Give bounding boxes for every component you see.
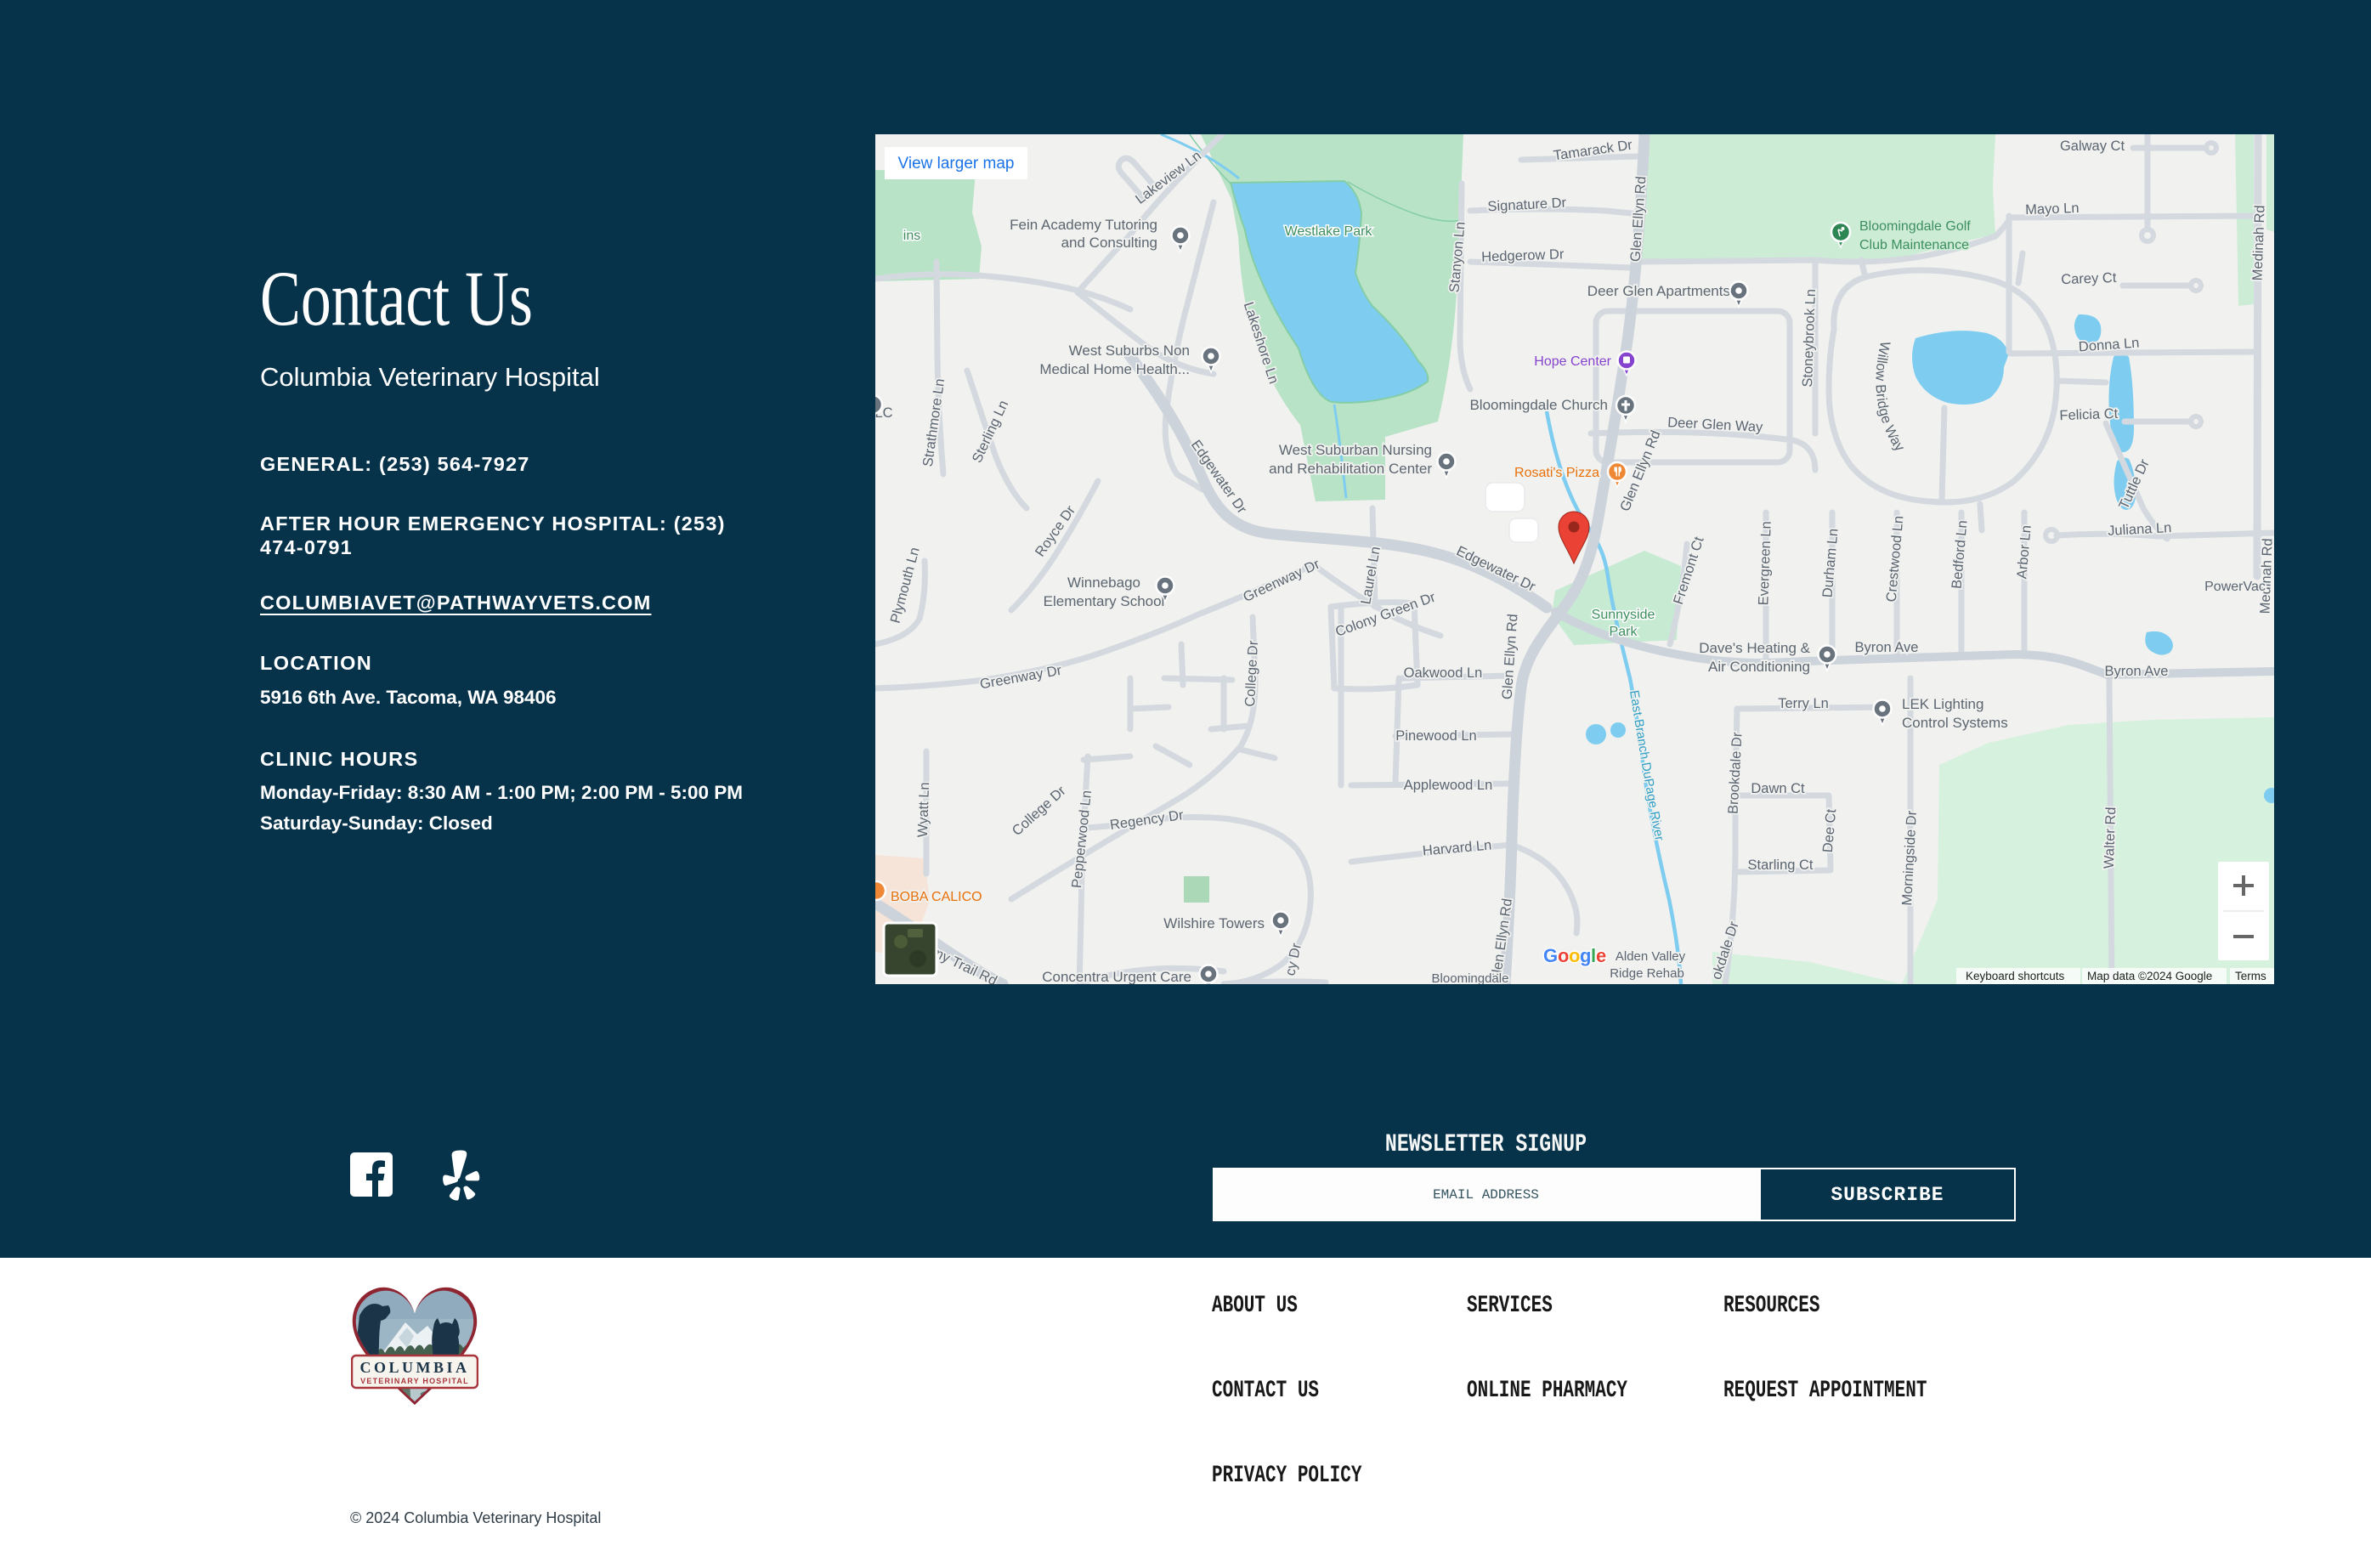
svg-text:o: o bbox=[1558, 945, 1569, 966]
svg-text:Alden Valley: Alden Valley bbox=[1616, 949, 1686, 964]
svg-text:ins: ins bbox=[903, 229, 920, 243]
svg-text:Medinah Rd: Medinah Rd bbox=[2257, 538, 2274, 614]
svg-text:Fein Academy Tutoring: Fein Academy Tutoring bbox=[1010, 217, 1157, 233]
svg-text:Medinah Rd: Medinah Rd bbox=[2249, 205, 2267, 281]
svg-text:Oakwood Ln: Oakwood Ln bbox=[1404, 665, 1483, 681]
svg-text:Ridge Rehab: Ridge Rehab bbox=[1610, 966, 1684, 981]
svg-text:PowerVac: PowerVac bbox=[2204, 580, 2266, 594]
svg-text:Deer Glen Apartments: Deer Glen Apartments bbox=[1587, 283, 1730, 299]
svg-text:G: G bbox=[1543, 945, 1558, 966]
svg-text:Bloomingdale Church: Bloomingdale Church bbox=[1469, 397, 1608, 413]
svg-text:Hedgerow Dr: Hedgerow Dr bbox=[1481, 246, 1565, 264]
svg-text:Dawn Ct: Dawn Ct bbox=[1751, 781, 1805, 796]
svg-text:Hope Center: Hope Center bbox=[1534, 354, 1611, 369]
svg-text:Starling Ct: Starling Ct bbox=[1747, 858, 1813, 873]
svg-text:Control Systems: Control Systems bbox=[1902, 715, 2008, 731]
svg-text:Club Maintenance: Club Maintenance bbox=[1859, 238, 1969, 252]
svg-text:and Rehabilitation Center: and Rehabilitation Center bbox=[1269, 461, 1432, 477]
svg-text:Byron Ave: Byron Ave bbox=[2105, 664, 2169, 679]
svg-text:COLUMBIA: COLUMBIA bbox=[359, 1359, 469, 1376]
svg-text:Air Conditioning: Air Conditioning bbox=[1708, 659, 1810, 675]
svg-text:Wilshire Towers: Wilshire Towers bbox=[1163, 915, 1265, 931]
svg-text:Map data ©2024 Google: Map data ©2024 Google bbox=[2087, 970, 2212, 982]
svg-text:VETERINARY HOSPITAL: VETERINARY HOSPITAL bbox=[360, 1377, 469, 1385]
svg-text:BOBA CALICO: BOBA CALICO bbox=[891, 890, 982, 904]
svg-text:Concentra Urgent Care: Concentra Urgent Care bbox=[1042, 969, 1191, 984]
svg-text:g: g bbox=[1580, 945, 1591, 966]
svg-text:Park: Park bbox=[1610, 625, 1638, 639]
svg-text:Sunnyside: Sunnyside bbox=[1592, 608, 1655, 622]
svg-text:West Suburban Nursing: West Suburban Nursing bbox=[1279, 442, 1432, 458]
svg-text:and Consulting: and Consulting bbox=[1061, 235, 1157, 251]
svg-text:Byron Ave: Byron Ave bbox=[1855, 640, 1919, 655]
svg-text:Bloomingdale Golf: Bloomingdale Golf bbox=[1859, 219, 1971, 234]
svg-text:Elementary School: Elementary School bbox=[1044, 593, 1165, 609]
svg-text:Carey Ct: Carey Ct bbox=[2061, 270, 2117, 287]
svg-text:Applewood Ln: Applewood Ln bbox=[1404, 778, 1493, 793]
svg-text:Pinewood Ln: Pinewood Ln bbox=[1395, 728, 1476, 744]
svg-text:Evergreen Ln: Evergreen Ln bbox=[1756, 521, 1774, 606]
svg-text:View larger map: View larger map bbox=[898, 155, 1015, 173]
svg-text:Galway Ct: Galway Ct bbox=[2060, 139, 2125, 154]
svg-text:Walter Rd: Walter Rd bbox=[2102, 807, 2119, 869]
svg-text:LEK Lighting: LEK Lighting bbox=[1902, 696, 1983, 712]
svg-text:Felicia Ct: Felicia Ct bbox=[2059, 406, 2119, 423]
svg-text:Mayo Ln: Mayo Ln bbox=[2025, 201, 2080, 218]
svg-text:Medical Home Health...: Medical Home Health... bbox=[1039, 361, 1190, 377]
svg-text:Rosati's Pizza: Rosati's Pizza bbox=[1514, 466, 1599, 480]
svg-text:Terms: Terms bbox=[2235, 970, 2266, 982]
svg-text:Wyatt Ln: Wyatt Ln bbox=[915, 782, 932, 838]
svg-text:Terry Ln: Terry Ln bbox=[1778, 696, 1829, 711]
svg-text:Keyboard shortcuts: Keyboard shortcuts bbox=[1966, 970, 2065, 982]
svg-text:e: e bbox=[1596, 945, 1606, 966]
svg-text:Bloomingdale: Bloomingdale bbox=[1432, 971, 1509, 984]
svg-text:Dave's Heating &: Dave's Heating & bbox=[1699, 640, 1810, 656]
svg-text:o: o bbox=[1569, 945, 1580, 966]
svg-text:Westlake Park: Westlake Park bbox=[1285, 224, 1373, 239]
svg-text:West Suburbs Non: West Suburbs Non bbox=[1069, 342, 1190, 359]
svg-text:Winnebago: Winnebago bbox=[1067, 575, 1140, 591]
